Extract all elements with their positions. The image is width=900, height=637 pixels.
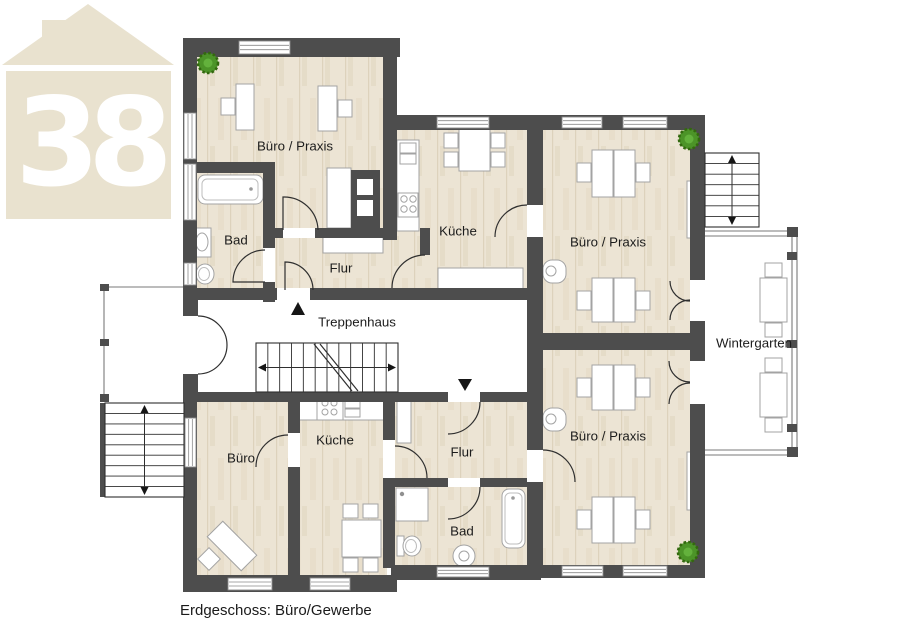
room-label: Flur [451,445,474,460]
chair [765,358,782,372]
room-label: Küche [439,224,477,239]
chair [343,558,358,572]
door-opening [185,316,198,374]
door-opening [283,228,315,238]
desk [592,278,613,322]
window [310,578,350,590]
window [623,117,667,128]
sideboard [323,236,383,253]
logo-number: 38 [15,72,166,214]
office-chair [636,291,650,310]
door-opening [288,433,300,467]
post [787,227,798,237]
chair [363,558,378,572]
post [787,447,798,457]
room-label: Treppenhaus [318,315,396,330]
room-label: Bad [450,524,474,539]
fountain-bowl [546,266,556,276]
duct-vent [357,179,373,195]
office-chair [577,291,591,310]
wall [535,565,705,578]
wall [183,392,540,402]
window [239,41,290,54]
room-label: Bad [224,233,248,248]
door-opening [448,392,480,402]
plant-center [685,135,694,144]
room-label: Küche [316,433,354,448]
window [562,566,603,576]
burner [322,409,328,415]
wall [183,298,198,316]
sink-basin [345,409,360,417]
caption: Erdgeschoss: Büro/Gewerbe [180,602,372,619]
wall [183,38,400,57]
shower-drain [400,492,404,496]
burner [401,206,407,212]
wall [383,57,397,240]
office-chair [636,510,650,529]
window [228,578,272,590]
door-opening [690,280,705,321]
door-opening [690,361,705,404]
chair [765,263,782,277]
burner [401,196,407,202]
desk [592,365,613,410]
wall [420,228,430,255]
plant-center [684,548,693,557]
desk [614,278,635,322]
sink-basin [400,154,416,164]
dining-table [459,127,490,171]
office-chair [577,378,591,397]
desk [614,150,635,197]
office-chair [221,98,235,115]
desk [614,365,635,410]
toilet-seat [406,540,417,553]
duct-vent [357,200,373,216]
sink-basin [400,143,416,153]
wood-floor [391,398,529,482]
logo: 38 [2,2,180,220]
room-label: Wintergarten [716,336,792,351]
bistro-table [760,373,787,417]
white-floor [106,288,184,402]
post [100,394,109,402]
burner [410,196,416,202]
dining-table [342,520,381,557]
door-opening [527,205,543,237]
window [184,263,196,285]
office-chair [577,163,591,182]
burner [410,206,416,212]
window [562,117,602,128]
kitchenette-counter [327,168,351,228]
wall [527,333,705,350]
post [100,284,109,291]
office-chair [636,163,650,182]
office-chair [636,378,650,397]
room-label: Büro / Praxis [570,235,646,250]
plant-center [204,59,213,68]
wall [183,374,198,394]
drain [249,187,253,191]
post [787,252,797,260]
window [184,113,196,159]
window [437,567,489,577]
wall [420,288,543,300]
chair [343,504,358,518]
window [185,418,196,467]
window [623,566,667,576]
wall [263,228,383,238]
office-chair [577,510,591,529]
window [184,164,196,220]
chair [491,133,505,148]
door-opening [263,248,275,282]
washbasin-bowl [196,233,208,251]
burner [331,409,337,415]
duct-block [351,170,380,228]
post [100,339,109,346]
desk [236,84,254,130]
pedestal-sink-bowl [459,551,469,561]
chair [491,152,505,167]
room-label: Büro / Praxis [257,139,333,154]
desk [592,497,613,543]
fountain-bowl [546,414,556,424]
chair [444,133,458,148]
room-label: Flur [330,261,353,276]
door-opening [277,288,310,300]
room-label: Büro / Praxis [570,429,646,444]
wall [690,130,705,578]
floorplan-page: Büro / PraxisBadFlurKücheBüro / PraxisTr… [0,0,900,637]
toilet-seat [199,268,210,281]
wall [183,162,275,173]
door-opening [383,440,395,478]
chair [444,152,458,167]
door-opening [527,450,543,482]
desk [614,497,635,543]
chair [765,418,782,432]
desk [318,86,337,131]
room-label: Büro [227,451,255,466]
office-chair [338,100,352,117]
logo-roof [2,4,174,65]
bistro-table [760,278,787,322]
desk [592,150,613,197]
wall [288,400,300,578]
post [787,424,797,432]
drain [511,496,515,500]
bathtub-inner [505,493,522,544]
chair [363,504,378,518]
door-opening [448,478,480,487]
shelf [397,401,411,443]
window [437,117,489,128]
